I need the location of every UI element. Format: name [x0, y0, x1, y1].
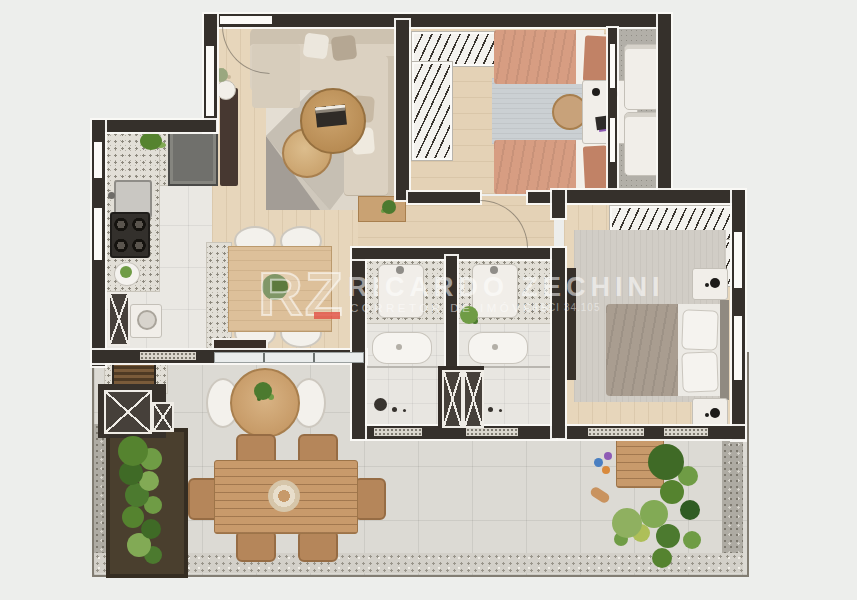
bistro-plant [254, 382, 272, 400]
entry-door-leaf [220, 16, 272, 24]
cooktop [110, 212, 150, 258]
dining-centerpiece [262, 274, 288, 300]
kitchen-plant [140, 132, 162, 150]
wall [552, 426, 745, 439]
washer-door [137, 310, 157, 330]
wall [732, 190, 745, 440]
window [734, 316, 742, 380]
window [588, 428, 644, 436]
wall [446, 256, 457, 368]
window [94, 208, 102, 260]
sofa-pillow [331, 35, 358, 62]
toy [594, 458, 603, 467]
ac-unit [624, 112, 660, 176]
outdoor-chair [354, 478, 386, 520]
bath-2-faucet [490, 266, 498, 274]
shaft-x-large [104, 390, 152, 434]
wall [560, 190, 745, 203]
window [664, 428, 708, 436]
wall [92, 120, 216, 132]
twin-bed-pillow [581, 143, 612, 194]
toilet-flush [492, 344, 498, 350]
outdoor-chair [236, 530, 276, 562]
window [466, 428, 518, 436]
coffee-table-books [315, 104, 347, 127]
console-table [220, 88, 238, 186]
service-window [140, 352, 196, 360]
wall [204, 14, 670, 27]
wall [408, 192, 480, 203]
ac-unit [624, 44, 660, 110]
master-bed-duvet [606, 304, 680, 396]
window [734, 232, 742, 288]
twin-bed-pillow [581, 33, 612, 84]
wall [552, 248, 565, 438]
wall [352, 248, 565, 259]
gravel-border-bottom [94, 553, 743, 573]
sliding-door-glass [214, 352, 364, 363]
twin-wardrobe-top [412, 32, 500, 66]
toy [604, 452, 612, 460]
dish-herb [120, 266, 132, 278]
bath-1-faucet [396, 266, 404, 274]
wall [396, 20, 409, 200]
nightstand-lamp [710, 278, 720, 288]
console-vase [216, 80, 236, 100]
nightstand-lamp [710, 408, 720, 418]
toilet [372, 332, 432, 364]
planter-plant [118, 436, 148, 466]
toilet [468, 332, 528, 364]
toilet-flush [396, 344, 402, 350]
desk-lamp [592, 88, 600, 96]
twin-bed-duvet [494, 30, 578, 84]
terrace-plant [648, 444, 684, 480]
wall [352, 248, 365, 439]
twin-wardrobe-left [412, 62, 452, 160]
floor-plan-render: RZ RICARDO ZECHINI CORRETOR DE IMÓVEIS C… [0, 0, 857, 600]
bath-plant [460, 306, 478, 324]
shower-head-icon [374, 398, 387, 411]
duct-x [463, 370, 484, 428]
faucet-icon [108, 192, 115, 199]
shaft-x-small [152, 402, 174, 432]
terrace-plant [612, 508, 642, 538]
wall [552, 190, 565, 218]
tv-console [566, 268, 576, 380]
table-centerpiece [268, 480, 300, 512]
master-bed-pillow [681, 309, 718, 350]
shelf-plant [382, 200, 396, 214]
window [610, 118, 615, 162]
duct-x [442, 370, 463, 428]
twin-bed-duvet [494, 140, 578, 194]
shower-partition [366, 366, 448, 368]
sofa-pillow [302, 32, 329, 59]
wall [658, 14, 671, 202]
toy [602, 466, 610, 474]
bistro-table [230, 368, 300, 438]
outdoor-chair [298, 530, 338, 562]
window [374, 428, 422, 436]
refrigerator [168, 128, 218, 186]
window [206, 46, 214, 116]
broom-closet-door [108, 292, 130, 346]
window [610, 44, 615, 88]
master-bed-pillow [681, 351, 718, 392]
headboard [720, 300, 729, 400]
window [94, 142, 102, 178]
